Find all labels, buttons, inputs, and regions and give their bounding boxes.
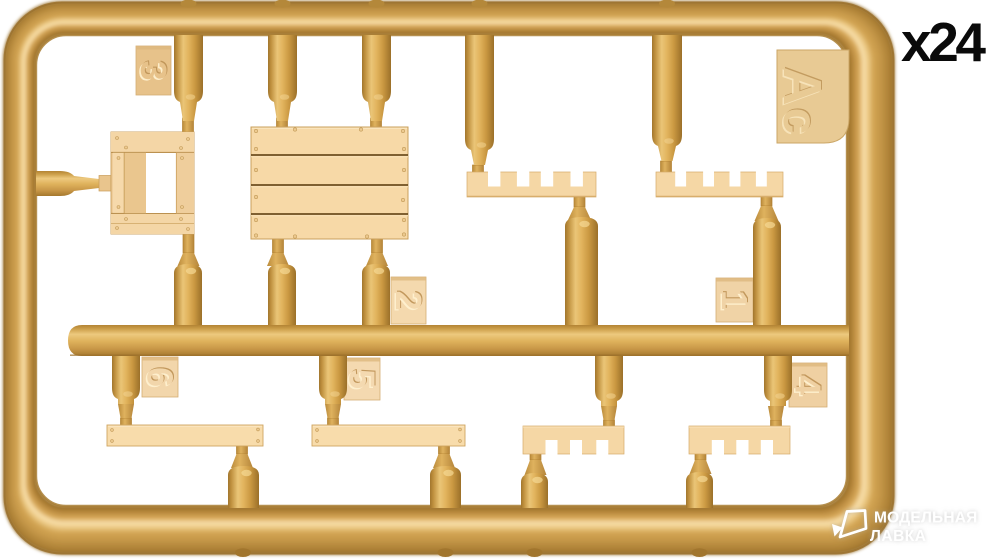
svg-text:3: 3 <box>133 60 174 80</box>
svg-text:2: 2 <box>388 290 429 310</box>
svg-text:c: c <box>773 108 826 135</box>
svg-text:x24: x24 <box>901 11 986 73</box>
svg-text:ЛАВКА: ЛАВКА <box>870 528 926 545</box>
svg-text:1: 1 <box>714 290 755 310</box>
svg-text:МОДЕЛЬНАЯ: МОДЕЛЬНАЯ <box>874 510 978 527</box>
svg-text:6: 6 <box>139 367 180 387</box>
svg-text:5: 5 <box>341 369 382 389</box>
svg-text:4: 4 <box>787 375 828 395</box>
svg-text:A: A <box>772 67 832 106</box>
